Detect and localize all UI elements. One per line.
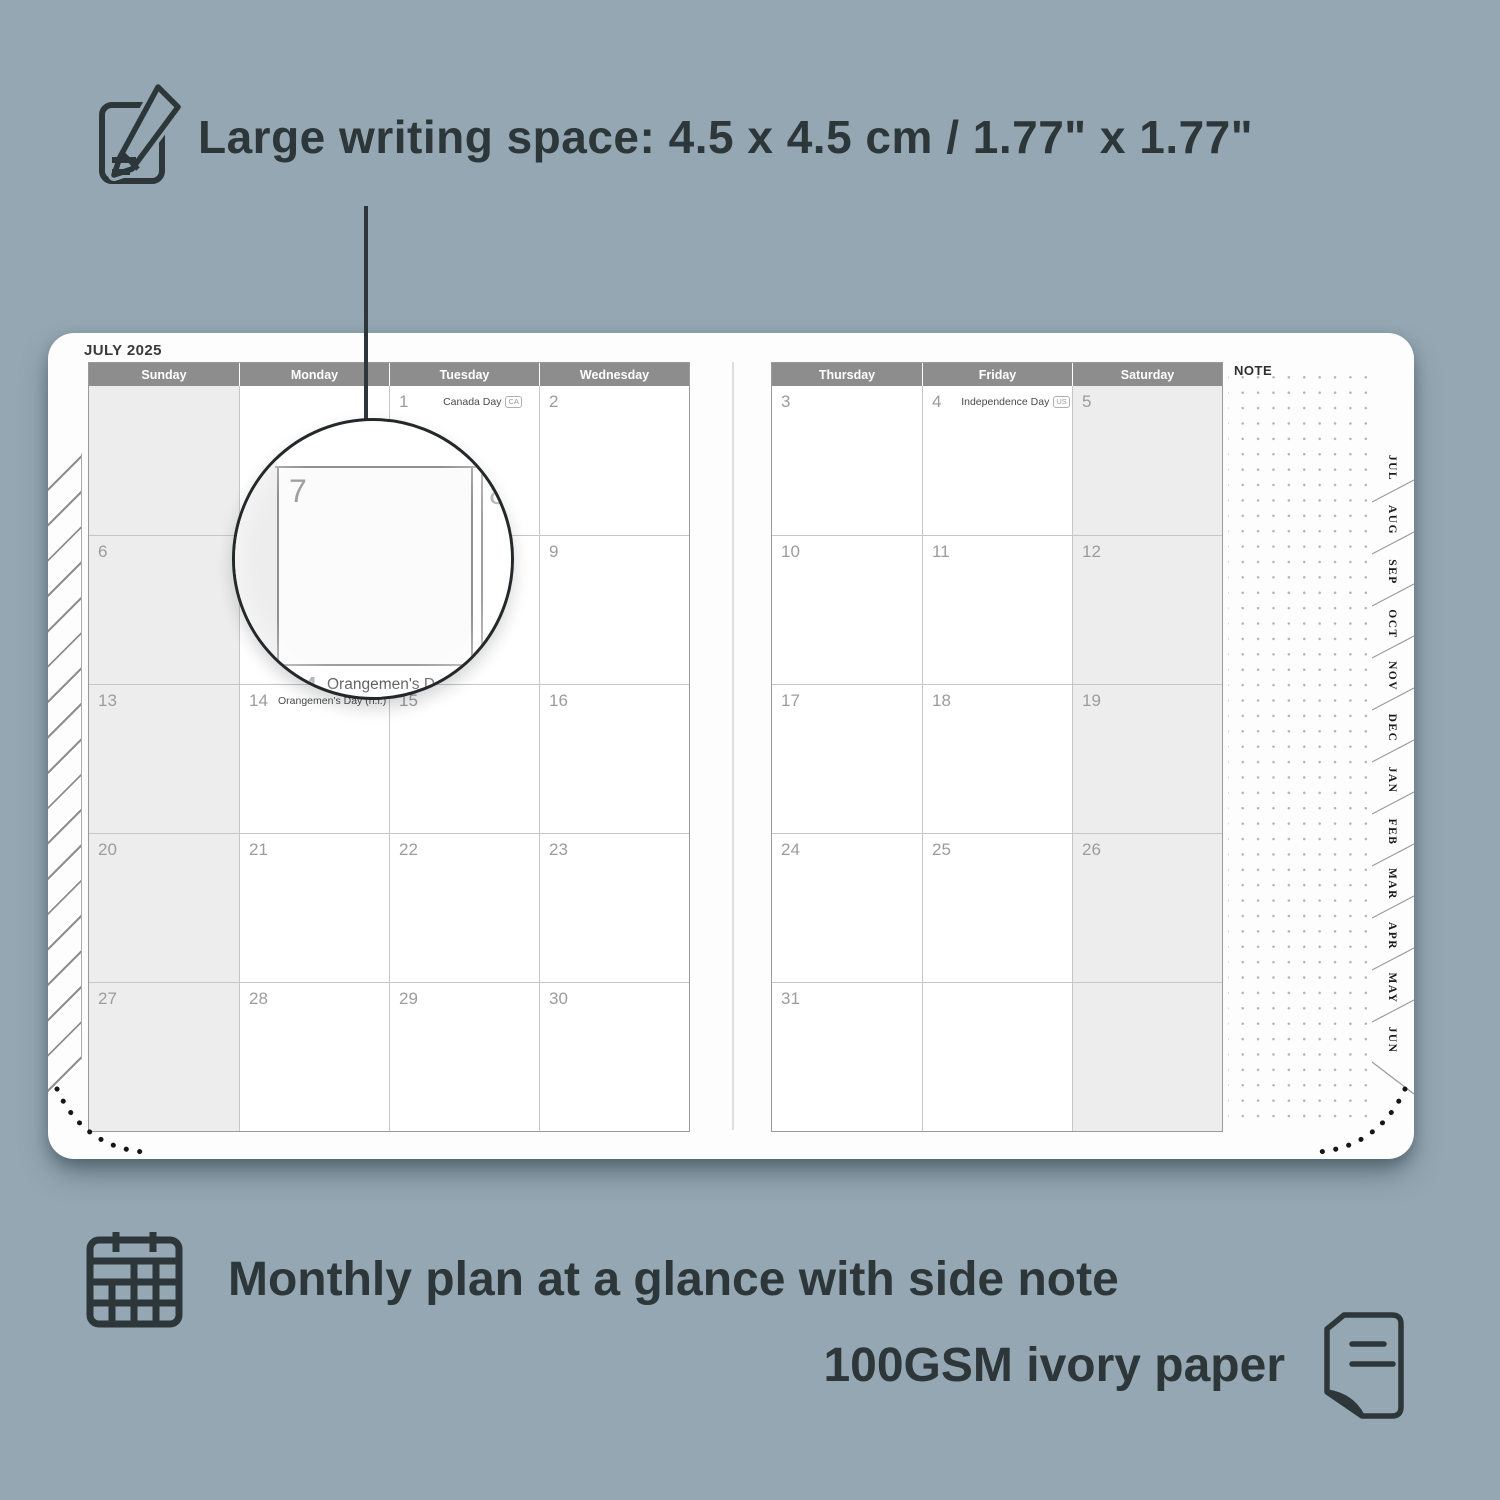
calendar-cell: 26: [1072, 833, 1222, 982]
calendar-cell: 18: [922, 684, 1072, 833]
day-header: Sunday: [89, 363, 239, 386]
day-number: 23: [549, 840, 568, 860]
lens-grid-line: [481, 466, 483, 666]
calendar-cell: 23: [539, 833, 689, 982]
country-badge: UK: [491, 678, 510, 692]
lens-weekend-column: [235, 421, 277, 697]
product-feature-image: Large writing space: 4.5 x 4.5 cm / 1.77…: [0, 0, 1500, 1500]
calendar-grid-icon: [86, 1230, 183, 1328]
month-title: JULY 2025: [84, 342, 162, 359]
day-number: 26: [1082, 840, 1101, 860]
day-number: 21: [249, 840, 268, 860]
month-tab-mar: MAR: [1386, 868, 1398, 900]
dotted-corner-arc-left: [54, 1077, 146, 1157]
calendar-right-page: ThursdayFridaySaturday34Independence Day…: [771, 362, 1223, 1132]
day-number: 19: [1082, 691, 1101, 711]
day-number: 22: [399, 840, 418, 860]
calendar-cell: 22: [389, 833, 539, 982]
day-number: 24: [781, 840, 800, 860]
calendar-cell: 24: [772, 833, 922, 982]
day-number: 12: [1082, 542, 1101, 562]
notepad-pencil-icon: [92, 80, 184, 188]
day-number: 4: [932, 392, 941, 412]
calendar-cell: 4Independence DayUS: [922, 386, 1072, 535]
month-tab-jul: JUL: [1386, 455, 1398, 481]
country-badge: US: [1053, 396, 1069, 408]
calendar-cell: 28: [239, 982, 389, 1131]
month-tab-oct: OCT: [1386, 609, 1398, 638]
lens-holiday-text: Orangemen's Day (n.i.)UK: [327, 676, 509, 694]
calendar-cell: [1072, 982, 1222, 1131]
holiday-label: Canada DayCA: [428, 396, 537, 408]
calendar-cell: 11: [922, 535, 1072, 684]
day-header: Tuesday: [389, 363, 539, 386]
paper-sheet-icon: [1322, 1312, 1406, 1422]
day-number: 17: [781, 691, 800, 711]
day-header: Thursday: [772, 363, 922, 386]
day-number: 28: [249, 989, 268, 1009]
calendar-cell: 21: [239, 833, 389, 982]
day-number: 1: [399, 392, 408, 412]
lens-day-number: 14: [279, 669, 319, 700]
page-edge-hatch: [48, 453, 82, 1093]
day-number: 16: [549, 691, 568, 711]
day-number: 5: [1082, 392, 1091, 412]
calendar-cell: 3: [772, 386, 922, 535]
calendar-cell: 6: [89, 535, 239, 684]
feature-bottom-line1: Monthly plan at a glance with side note: [228, 1252, 1119, 1307]
day-number: 2: [549, 392, 558, 412]
page-spine-divider: [732, 362, 734, 1130]
month-tab-aug: AUG: [1386, 505, 1398, 535]
calendar-cell: 31: [772, 982, 922, 1131]
feature-top-text: Large writing space: 4.5 x 4.5 cm / 1.77…: [198, 110, 1253, 164]
calendar-cell: 15: [389, 684, 539, 833]
calendar-cell: 16: [539, 684, 689, 833]
calendar-cell: 5: [1072, 386, 1222, 535]
calendar-cell: [922, 982, 1072, 1131]
calendar-cell: 14Orangemen's Day (n.i.)UK: [239, 684, 389, 833]
day-header: Wednesday: [539, 363, 689, 386]
calendar-cell: 20: [89, 833, 239, 982]
day-header: Saturday: [1072, 363, 1222, 386]
calendar-cell: 13: [89, 684, 239, 833]
month-tab-jan: JAN: [1386, 767, 1398, 794]
day-number: 25: [932, 840, 951, 860]
day-number: 30: [549, 989, 568, 1009]
month-tab-dec: DEC: [1386, 714, 1398, 743]
calendar-cell: 9: [539, 535, 689, 684]
dotted-corner-arc-right: [1316, 1077, 1408, 1157]
day-number: 11: [932, 542, 950, 562]
calendar-cell: 2: [539, 386, 689, 535]
day-number: 9: [549, 542, 558, 562]
feature-bottom-line2: 100GSM ivory paper: [823, 1338, 1285, 1393]
day-number: 3: [781, 392, 790, 412]
day-number: 13: [98, 691, 117, 711]
calendar-cell: [89, 386, 239, 535]
magnifier-lens: 7 8 14 Orangemen's Day (n.i.)UK: [232, 418, 514, 700]
note-dot-grid: [1228, 371, 1374, 1129]
month-tab-jun: JUN: [1386, 1027, 1398, 1054]
month-tab-sep: SEP: [1386, 559, 1398, 585]
month-tab-may: MAY: [1386, 973, 1398, 1004]
calendar-cell: 12: [1072, 535, 1222, 684]
lens-day-number: 8: [489, 475, 507, 512]
day-number: 10: [781, 542, 800, 562]
calendar-cell: 10: [772, 535, 922, 684]
day-number: 27: [98, 989, 117, 1009]
calendar-cell: 29: [389, 982, 539, 1131]
day-number: 6: [98, 542, 107, 562]
calendar-cell: 17: [772, 684, 922, 833]
annotation-line: [364, 206, 368, 420]
country-badge: CA: [505, 396, 521, 408]
calendar-cell: 25: [922, 833, 1072, 982]
calendar-cell: 30: [539, 982, 689, 1131]
day-header: Friday: [922, 363, 1072, 386]
month-tab-apr: APR: [1386, 922, 1398, 950]
lens-grid-line: [235, 664, 511, 666]
day-number: 20: [98, 840, 117, 860]
month-tab-nov: NOV: [1386, 661, 1398, 691]
lens-day-number: 7: [289, 473, 307, 510]
day-number: 29: [399, 989, 418, 1009]
day-number: 18: [932, 691, 951, 711]
month-tabs: JULAUGSEPOCTNOVDECJANFEBMARAPRMAYJUN: [1372, 428, 1414, 1098]
calendar-cell: 19: [1072, 684, 1222, 833]
month-tab-feb: FEB: [1386, 819, 1398, 846]
holiday-label: Independence DayUS: [961, 396, 1070, 408]
day-number: 31: [781, 989, 800, 1009]
